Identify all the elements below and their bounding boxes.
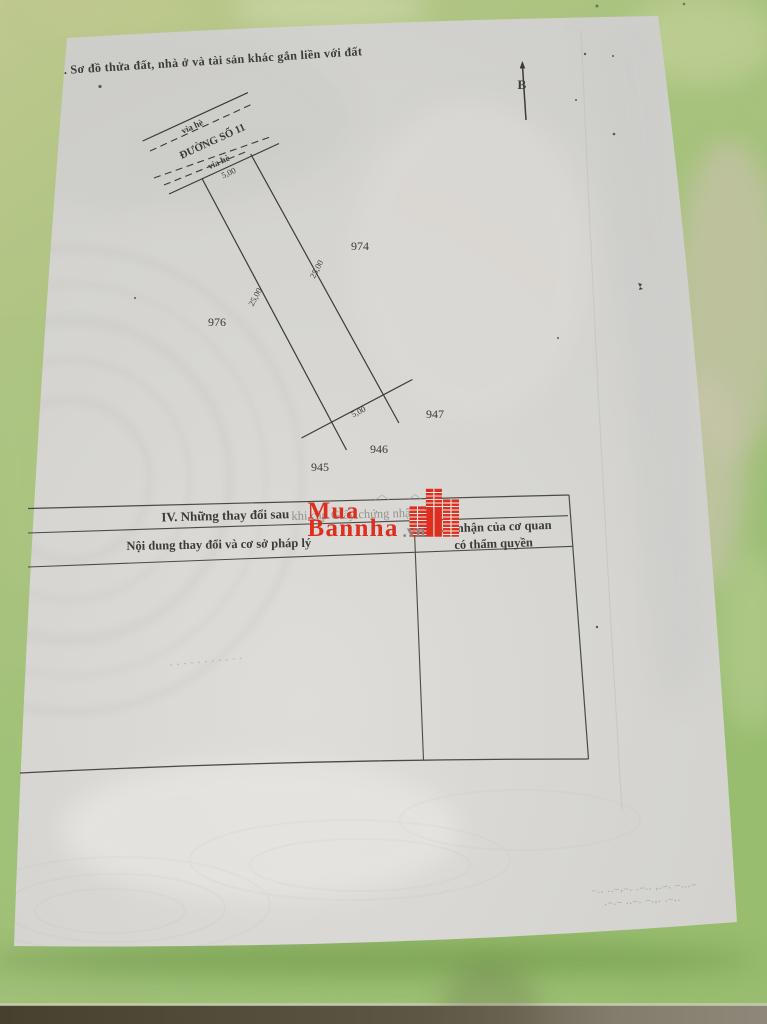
svg-text:976: 976 (208, 315, 226, 329)
svg-text:có thẩm quyền: có thẩm quyền (454, 535, 533, 552)
svg-text:947: 947 (426, 407, 444, 421)
svg-text:946: 946 (370, 442, 388, 456)
svg-text:974: 974 (351, 239, 369, 253)
svg-text:.vn: .vn (403, 521, 426, 541)
svg-text:B: B (518, 77, 527, 92)
svg-text:Bannha: Bannha (308, 515, 399, 542)
svg-text:945: 945 (311, 460, 329, 474)
